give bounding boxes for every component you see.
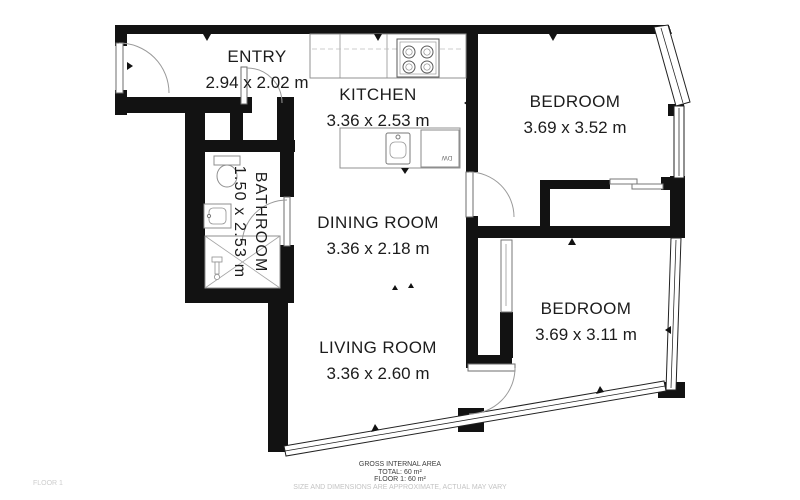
bathroom-door-leaf (284, 197, 290, 246)
room-dimensions: 3.36 x 2.18 m (317, 236, 439, 262)
shower-riser-icon (215, 262, 219, 274)
wall-central-mid (466, 216, 478, 368)
bedroom1-door-leaf (466, 172, 473, 217)
disclaimer-text: SIZE AND DIMENSIONS ARE APPROXIMATE, ACT… (0, 484, 800, 492)
room-name: KITCHEN (326, 82, 429, 108)
floor-label: FLOOR 1 (33, 480, 63, 487)
wall-top (115, 25, 662, 34)
tick-mark (203, 34, 211, 41)
room-name: BATHROOM (250, 166, 271, 279)
wall-nook-vertical (500, 312, 513, 358)
room-name: DINING ROOM (317, 210, 439, 236)
kitchen-counter (310, 34, 466, 78)
tick-mark (127, 62, 133, 70)
bedroom2-door-leaf (468, 364, 515, 371)
shower-valve-icon (212, 257, 222, 262)
room-dimensions: 3.69 x 3.11 m (535, 322, 637, 348)
stove-burner-inner (406, 49, 412, 55)
tick-mark (549, 34, 557, 41)
room-dimensions: 1.50 x 2.53 m (229, 166, 250, 279)
island-sink-faucet-icon (396, 135, 400, 139)
wall-bathroom-left (185, 110, 205, 302)
floor-area-value: FLOOR 1: 60 m² (0, 476, 800, 484)
room-label-bedroom-top: BEDROOM 3.69 x 3.52 m (523, 89, 626, 141)
bedroom1-door-swing (469, 172, 514, 217)
closet1-sliding-door-panel-a (610, 179, 637, 184)
footer: GROSS INTERNAL AREA TOTAL: 60 m² FLOOR 1… (0, 461, 800, 491)
wall-living-left (268, 298, 288, 452)
bedroom2-door-swing (469, 368, 515, 414)
room-label-living: LIVING ROOM 3.36 x 2.60 m (319, 335, 437, 387)
room-label-bathroom: BATHROOM 1.50 x 2.53 m (229, 166, 271, 279)
wall-closet1-top (548, 180, 610, 189)
room-dimensions: 3.69 x 3.52 m (523, 115, 626, 141)
entry-front-door-leaf (116, 43, 123, 93)
room-label-dining: DINING ROOM 3.36 x 2.18 m (317, 210, 439, 262)
closet1-sliding-door-panel-b (632, 184, 663, 189)
room-dimensions: 3.36 x 2.60 m (319, 361, 437, 387)
room-dimensions: 3.36 x 2.53 m (326, 108, 429, 134)
bathroom-sink-basin (209, 208, 226, 224)
room-name: LIVING ROOM (319, 335, 437, 361)
wall-central-upper (466, 25, 478, 172)
room-label-kitchen: KITCHEN 3.36 x 2.53 m (326, 82, 429, 134)
wall-bedroom2-top (466, 226, 683, 238)
room-name: BEDROOM (523, 89, 626, 115)
island-sink-basin (390, 142, 406, 158)
toilet-tank-icon (214, 156, 240, 165)
stove-burner-inner (424, 49, 430, 55)
gross-internal-area-title: GROSS INTERNAL AREA (0, 461, 800, 469)
tick-mark (568, 238, 576, 245)
tick-mark (392, 285, 398, 290)
room-label-entry: ENTRY 2.94 x 2.02 m (205, 44, 308, 96)
stove-burner-inner (406, 64, 412, 70)
room-label-bedroom-bottom: BEDROOM 3.69 x 3.11 m (535, 296, 637, 348)
room-name: BEDROOM (535, 296, 637, 322)
tick-mark (401, 168, 409, 174)
wall-closet-right-stub (277, 97, 294, 145)
window-bottom-glazed-wall-mullion (285, 386, 665, 451)
tick-mark (408, 283, 414, 288)
floorplan-canvas: DW (0, 0, 800, 500)
wall-right-piece (670, 176, 685, 238)
total-area-value: TOTAL: 60 m² (0, 469, 800, 477)
wall-bathroom-right-upper (280, 145, 294, 197)
shower-head-icon (214, 274, 219, 279)
bathroom-sink-faucet-icon (207, 214, 210, 217)
room-name: ENTRY (205, 44, 308, 70)
room-dimensions: 2.94 x 2.02 m (205, 70, 308, 96)
dishwasher-label: DW (441, 154, 453, 161)
entry-front-door-swing (119, 43, 169, 93)
stove-burner-inner (424, 64, 430, 70)
bedroom2-pocket-door-panel (501, 240, 512, 312)
